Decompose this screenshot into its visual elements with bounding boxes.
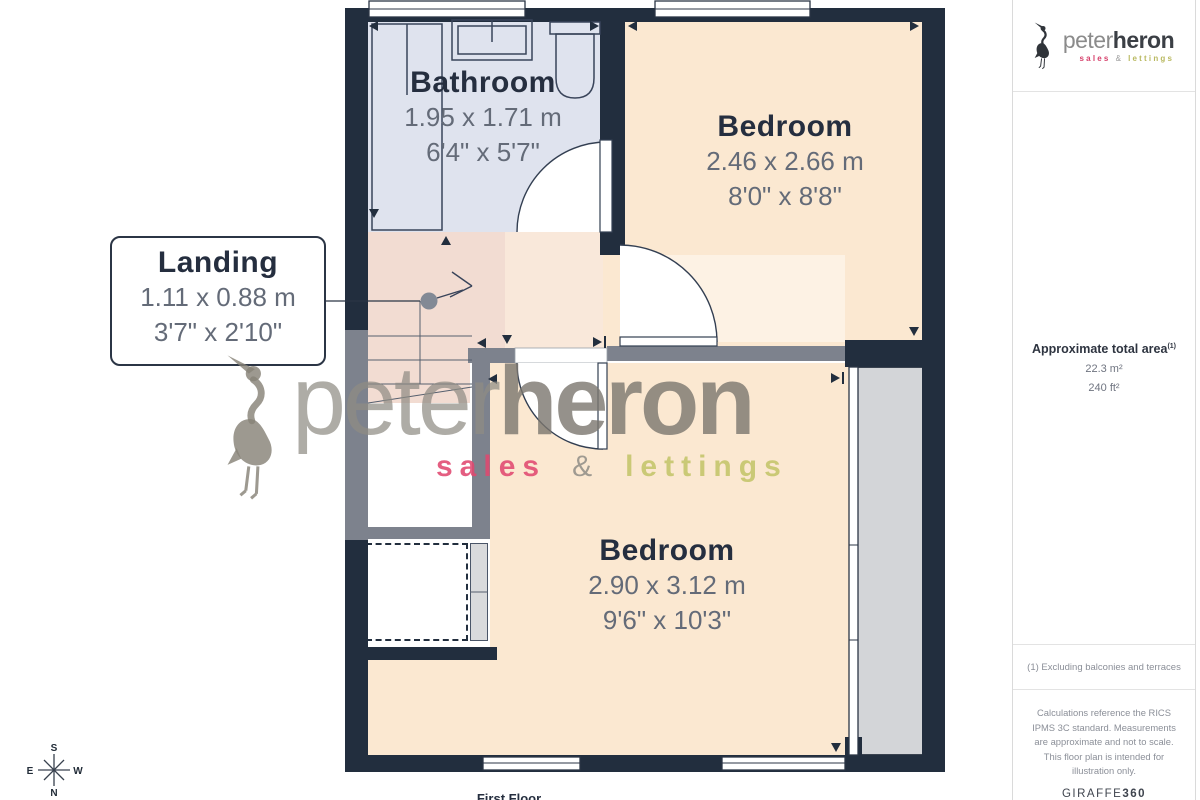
wall-bathroom-bedroom: [600, 8, 625, 255]
logo-sales: sales: [1080, 54, 1111, 63]
room-dim-metric: 2.46 x 2.66 m: [706, 144, 864, 179]
compass-west: W: [73, 766, 83, 777]
logo-brand-secondary: heron: [1113, 27, 1174, 53]
wall-stairwell-right: [472, 363, 490, 539]
area-footnote-ref: (1): [1167, 343, 1176, 350]
room-dim-imperial: 9'6" x 10'3": [588, 603, 746, 638]
giraffe360-credit: GIRAFFE360: [1026, 788, 1182, 800]
area-title-text: Approximate total area: [1032, 342, 1167, 356]
room-name: Bedroom: [706, 110, 864, 144]
storage-void: [366, 543, 468, 641]
sidebar: peterheron sales & lettings Approximate …: [1012, 0, 1196, 800]
room-dim-imperial: 3'7" x 2'10": [112, 315, 324, 350]
room-name: Bathroom: [404, 66, 562, 100]
bedroom1-label: Bedroom 2.46 x 2.66 m 8'0" x 8'8": [706, 110, 864, 214]
wall-bedroom1-bottom: [845, 340, 922, 367]
wall-landing-a: [468, 348, 515, 363]
sidebar-legal-section: Calculations reference the RICS IPMS 3C …: [1013, 689, 1195, 800]
wall-top: [345, 8, 945, 22]
logo-tagline: sales & lettings: [1080, 54, 1175, 63]
hall-highlight: [622, 255, 845, 342]
radiator: [470, 543, 488, 641]
room-dim-imperial: 8'0" x 8'8": [706, 179, 864, 214]
logo-brand-primary: peter: [1063, 27, 1113, 53]
room-name: Landing: [112, 246, 324, 280]
compass-south: S: [51, 743, 58, 754]
room-dim-metric: 2.90 x 3.12 m: [588, 568, 746, 603]
credit-brand: GIRAFFE: [1062, 788, 1122, 800]
bathroom-label: Bathroom 1.95 x 1.71 m 6'4" x 5'7": [404, 66, 562, 170]
wall-bottom: [345, 755, 945, 772]
area-imperial: 240 ft²: [1088, 382, 1119, 394]
stairs-floor: [368, 352, 470, 403]
wall-left-gray: [345, 330, 368, 540]
compass-north: N: [50, 788, 57, 799]
floor-title: First Floor: [477, 791, 541, 800]
bedroom2-label: Bedroom 2.90 x 3.12 m 9'6" x 10'3": [588, 534, 746, 638]
room-dim-metric: 1.11 x 0.88 m: [112, 280, 324, 315]
logo-name: peterheron: [1063, 29, 1174, 52]
wall-left-upper: [345, 8, 368, 330]
area-metric: 22.3 m²: [1085, 363, 1122, 375]
floorplan-page: S N E W Bathroom 1.95 x 1.71 m 6'4" x 5'…: [0, 0, 1200, 800]
wall-stairwell-bottom: [345, 527, 490, 539]
disclaimer-text: Calculations reference the RICS IPMS 3C …: [1026, 706, 1182, 779]
landing-callout: Landing 1.11 x 0.88 m 3'7" x 2'10": [110, 236, 326, 366]
room-name: Bedroom: [588, 534, 746, 568]
landing-tint: [368, 232, 505, 352]
bedroom2-floor-left: [368, 660, 490, 755]
logo-ampersand: &: [1116, 54, 1124, 63]
wall-bottomleft-horizontal: [345, 647, 497, 660]
credit-suffix: 360: [1122, 788, 1146, 800]
wall-block-bottomright: [845, 737, 862, 755]
room-dim-metric: 1.95 x 1.71 m: [404, 100, 562, 135]
room-dim-imperial: 6'4" x 5'7": [404, 135, 562, 170]
logo-lettings: lettings: [1128, 54, 1174, 63]
heron-watermark-icon: [226, 352, 302, 504]
sidebar-logo: peterheron sales & lettings: [1013, 0, 1195, 92]
sidebar-footnote: (1) Excluding balconies and terraces: [1013, 644, 1195, 689]
compass-east: E: [27, 766, 34, 777]
wall-landing-b: [607, 346, 845, 361]
stairwell-void: [368, 403, 472, 527]
logo-text: peterheron sales & lettings: [1063, 29, 1174, 63]
compass: S N E W: [27, 743, 84, 799]
sidebar-area-section: Approximate total area(1) 22.3 m² 240 ft…: [1013, 92, 1195, 644]
exterior-strip: [858, 367, 922, 755]
area-title: Approximate total area(1): [1032, 342, 1176, 356]
heron-logo-icon: [1034, 22, 1059, 70]
wall-right: [922, 8, 945, 772]
